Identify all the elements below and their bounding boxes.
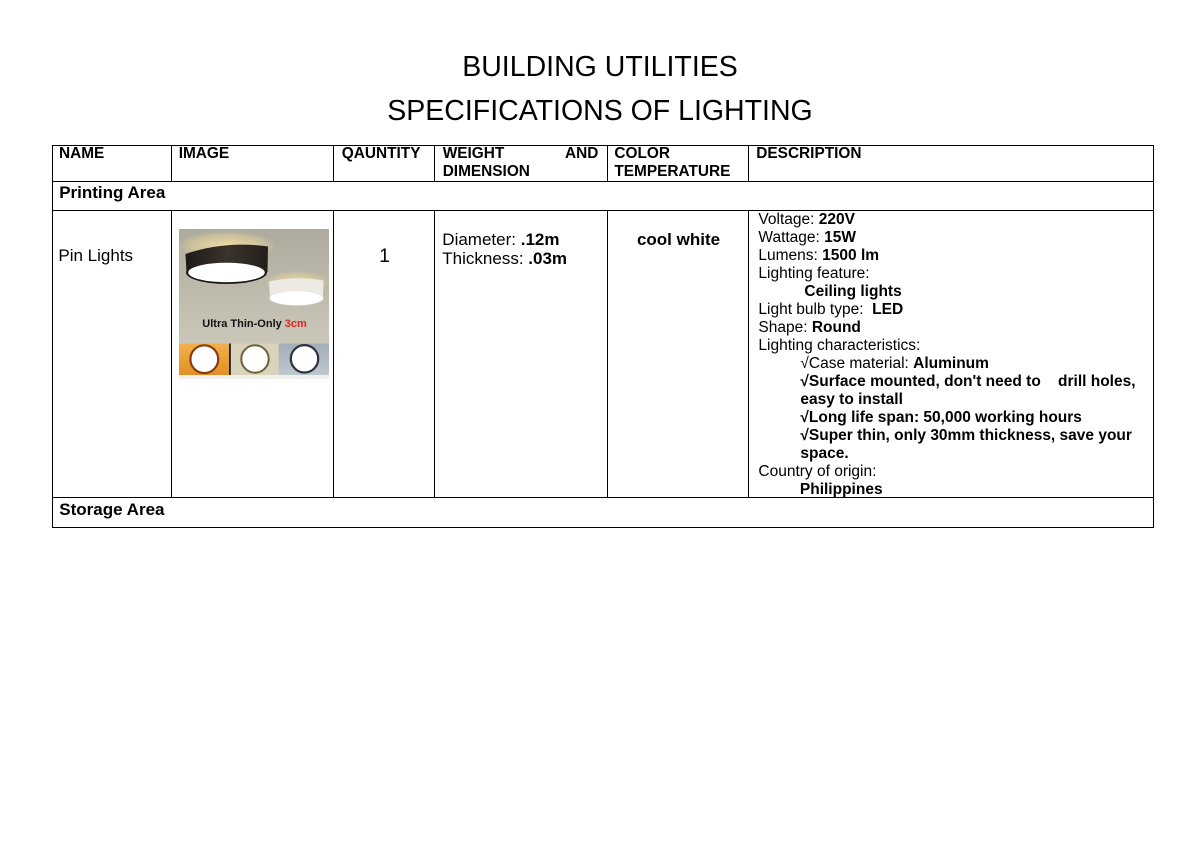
svg-text:Ultra Thin-Only 3cm: Ultra Thin-Only 3cm [202,318,307,330]
